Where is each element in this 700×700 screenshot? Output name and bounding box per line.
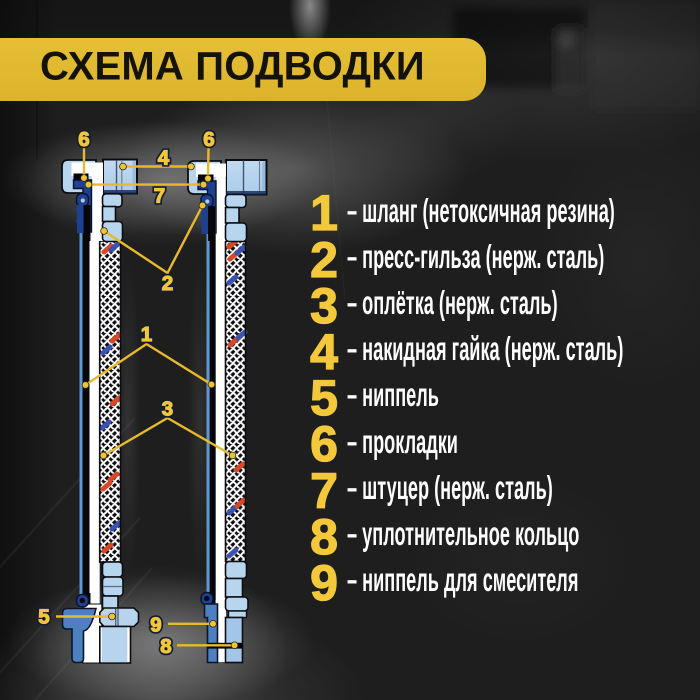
svg-text:6: 6 bbox=[78, 128, 89, 151]
svg-text:2: 2 bbox=[162, 272, 173, 295]
svg-text:5: 5 bbox=[38, 606, 49, 629]
svg-text:7: 7 bbox=[154, 185, 165, 208]
svg-text:6: 6 bbox=[203, 128, 214, 151]
svg-text:1: 1 bbox=[141, 323, 152, 346]
svg-text:3: 3 bbox=[162, 398, 173, 421]
svg-text:9: 9 bbox=[150, 614, 161, 637]
svg-text:8: 8 bbox=[160, 635, 171, 658]
svg-text:4: 4 bbox=[158, 147, 170, 170]
